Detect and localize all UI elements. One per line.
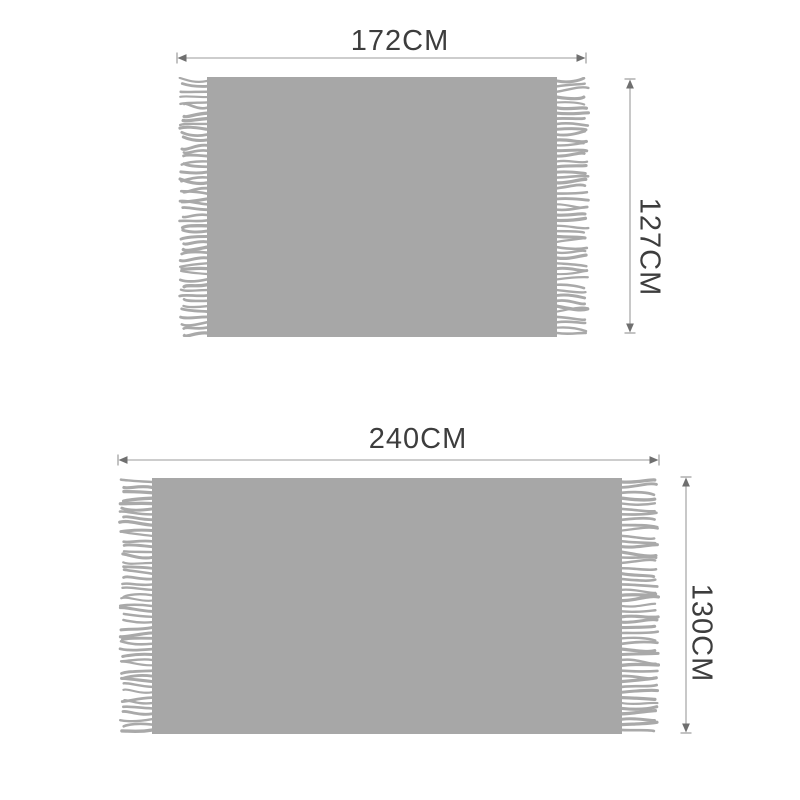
fringe-right-small (557, 77, 590, 337)
width-dimension-arrow-large (117, 452, 660, 468)
fringe-left-small (178, 77, 207, 337)
blanket-body-small (207, 77, 557, 337)
blanket-small (178, 77, 590, 337)
blanket-body-large (152, 478, 622, 734)
fringe-left-large (118, 478, 152, 734)
fringe-right-large (622, 478, 660, 734)
width-dimension-arrow-small (176, 50, 587, 66)
blanket-large (118, 478, 660, 734)
product-size-diagram: 172CM 127CM 240CM 130CM (0, 0, 800, 800)
